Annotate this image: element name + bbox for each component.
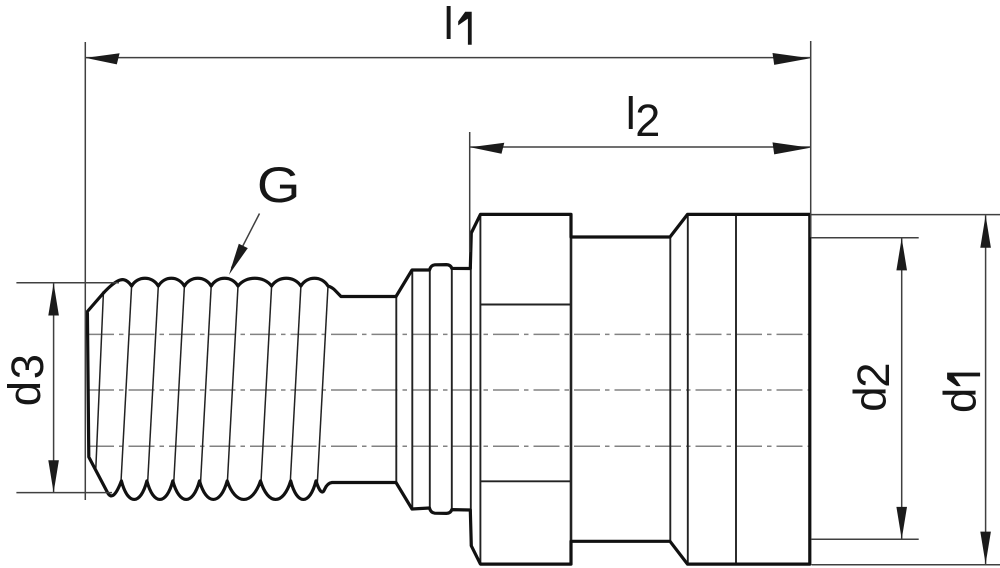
svg-text:2: 2 (848, 362, 899, 387)
svg-text:d: d (934, 388, 985, 413)
svg-text:d: d (845, 386, 896, 411)
svg-text:G: G (257, 157, 301, 213)
svg-text:l: l (444, 0, 454, 49)
svg-text:d: d (0, 381, 50, 406)
svg-text:2: 2 (635, 95, 660, 146)
svg-text:l: l (626, 88, 636, 139)
svg-text:3: 3 (2, 354, 53, 379)
